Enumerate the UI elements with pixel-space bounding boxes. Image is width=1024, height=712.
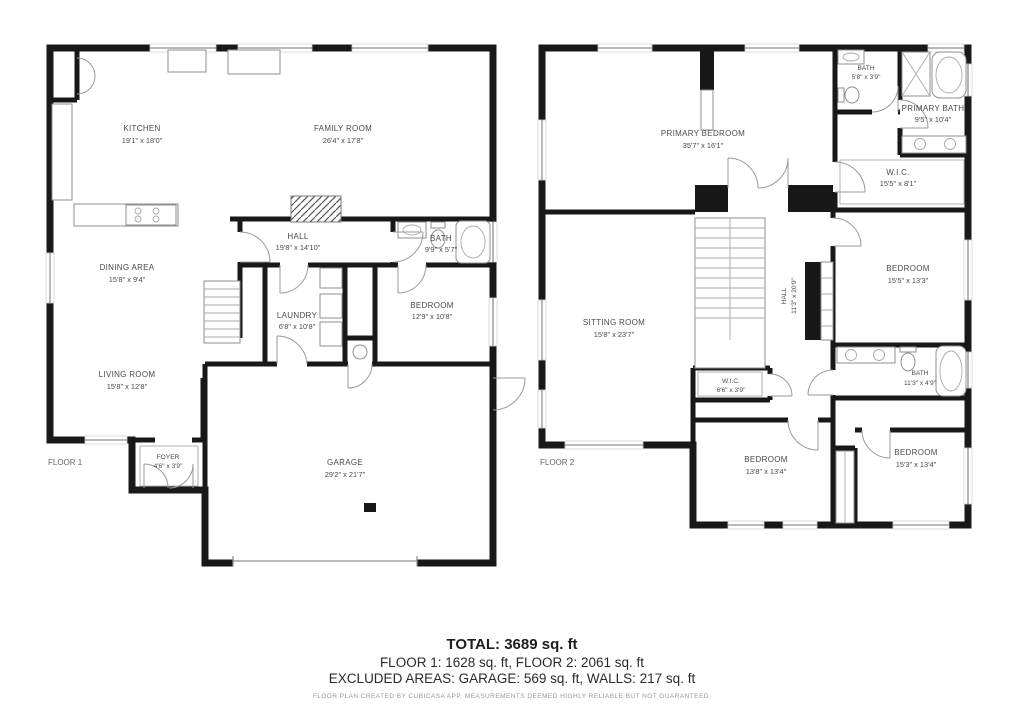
floor1-label: FLOOR 1 xyxy=(48,458,83,467)
room-label-primary-bedroom: PRIMARY BEDROOM 35'7" x 16'1" xyxy=(661,129,745,150)
svg-text:11'3" x 20'9": 11'3" x 20'9" xyxy=(791,278,798,314)
floor2-stairs xyxy=(695,218,765,368)
svg-text:SITTING ROOM: SITTING ROOM xyxy=(583,318,645,327)
svg-text:W.I.C.: W.I.C. xyxy=(722,378,740,385)
room-label-sitting-room: SITTING ROOM 15'8" x 23'7" xyxy=(583,318,645,339)
room-label-bedroom-bottom-right: BEDROOM 15'3" x 13'4" xyxy=(894,448,937,469)
room-label-family-room: FAMILY ROOM 26'4" x 17'8" xyxy=(314,124,372,145)
svg-text:LIVING ROOM: LIVING ROOM xyxy=(99,370,156,379)
bedroom-closet xyxy=(836,451,854,523)
svg-text:29'2" x 21'7": 29'2" x 21'7" xyxy=(325,470,366,479)
summary-floors: FLOOR 1: 1628 sq. ft, FLOOR 2: 2061 sq. … xyxy=(0,655,1024,670)
svg-text:9'9" x 5'7": 9'9" x 5'7" xyxy=(425,245,458,254)
room-label-garage: GARAGE 29'2" x 21'7" xyxy=(325,458,366,479)
svg-text:35'7" x 16'1": 35'7" x 16'1" xyxy=(683,141,724,150)
svg-text:15'8" x 9'4": 15'8" x 9'4" xyxy=(109,275,146,284)
room-label-kitchen: KITCHEN 19'1" x 18'0" xyxy=(122,124,163,145)
room-label-dining-area: DINING AREA 15'8" x 9'4" xyxy=(100,263,155,284)
svg-text:15'3" x 13'4": 15'3" x 13'4" xyxy=(896,460,937,469)
floor-plan-canvas: KITCHEN 19'1" x 18'0" FAMILY ROOM 26'4" … xyxy=(0,0,1024,712)
svg-text:12'9" x 10'8": 12'9" x 10'8" xyxy=(412,312,453,321)
svg-text:PRIMARY BATH: PRIMARY BATH xyxy=(902,104,965,113)
svg-text:6'8" x 10'8": 6'8" x 10'8" xyxy=(279,322,316,331)
svg-text:BATH: BATH xyxy=(911,370,928,377)
svg-text:LAUNDRY: LAUNDRY xyxy=(277,311,318,320)
svg-text:4'6" x 3'9": 4'6" x 3'9" xyxy=(154,463,183,470)
duct xyxy=(701,90,713,130)
summary-total: TOTAL: 3689 sq. ft xyxy=(0,636,1024,653)
svg-text:13'8" x 13'4": 13'8" x 13'4" xyxy=(746,467,787,476)
floor2-plan: PRIMARY BEDROOM 35'7" x 16'1" BATH 5'8" … xyxy=(538,44,972,529)
room-label-bedroom1: BEDROOM 12'9" x 10'8" xyxy=(410,301,453,321)
room-label-laundry: LAUNDRY 6'8" x 10'8" xyxy=(277,311,318,331)
svg-text:KITCHEN: KITCHEN xyxy=(123,124,160,133)
garage-door xyxy=(233,556,417,569)
svg-text:19'8" x 14'10": 19'8" x 14'10" xyxy=(276,243,321,252)
svg-text:BEDROOM: BEDROOM xyxy=(744,455,787,464)
svg-text:BATH: BATH xyxy=(430,234,452,243)
svg-text:W.I.C.: W.I.C. xyxy=(886,168,910,177)
svg-text:19'1" x 18'0": 19'1" x 18'0" xyxy=(122,136,163,145)
svg-text:15'8" x 12'8": 15'8" x 12'8" xyxy=(107,382,148,391)
summary-disclaimer: FLOOR PLAN CREATED BY CUBICASA APP. MEAS… xyxy=(0,693,1024,700)
floor1-stairs xyxy=(204,281,240,343)
svg-text:PRIMARY BEDROOM: PRIMARY BEDROOM xyxy=(661,129,745,138)
garage-post xyxy=(364,503,376,512)
room-label-bedroom-bottom-left: BEDROOM 13'8" x 13'4" xyxy=(744,455,787,476)
wall-chunk-left xyxy=(695,185,728,212)
room-label-primary-bath: PRIMARY BATH 9'5" x 10'4" xyxy=(902,104,965,124)
svg-text:BEDROOM: BEDROOM xyxy=(886,264,929,273)
floor1-doors xyxy=(77,58,525,488)
svg-text:FOYER: FOYER xyxy=(157,454,180,461)
summary-excluded: EXCLUDED AREAS: GARAGE: 569 sq. ft, WALL… xyxy=(0,671,1024,686)
svg-text:GARAGE: GARAGE xyxy=(327,458,363,467)
svg-text:26'4" x 17'8": 26'4" x 17'8" xyxy=(323,136,364,145)
room-label-wic: W.I.C. 15'5" x 8'1" xyxy=(880,168,917,188)
room-label-bath-top: BATH 5'8" x 3'9" xyxy=(852,65,881,81)
svg-text:9'5" x 10'4": 9'5" x 10'4" xyxy=(915,115,952,124)
chimney-stub xyxy=(700,48,714,90)
wall-chunk-right xyxy=(788,185,833,212)
room-label-living-room: LIVING ROOM 15'8" x 12'8" xyxy=(99,370,156,391)
floor2-bath-mid-fixtures xyxy=(837,346,966,396)
svg-text:15'8" x 23'7": 15'8" x 23'7" xyxy=(594,330,635,339)
hall-shelves xyxy=(821,262,833,340)
svg-text:FAMILY ROOM: FAMILY ROOM xyxy=(314,124,372,133)
svg-text:11'3" x 4'9": 11'3" x 4'9" xyxy=(904,380,937,387)
svg-text:15'5" x 8'1": 15'5" x 8'1" xyxy=(880,179,917,188)
svg-text:15'5" x 13'3": 15'5" x 13'3" xyxy=(888,276,929,285)
room-label-hall2: HALL 11'3" x 20'9" xyxy=(781,278,798,314)
floor1-plan: KITCHEN 19'1" x 18'0" FAMILY ROOM 26'4" … xyxy=(46,44,525,569)
room-label-bedroom-right: BEDROOM 15'5" x 13'3" xyxy=(886,264,929,285)
kitchen-fixtures xyxy=(52,50,280,226)
svg-text:DINING AREA: DINING AREA xyxy=(100,263,155,272)
floor2-label: FLOOR 2 xyxy=(540,458,575,467)
room-label-wic-small: W.I.C. 6'6" x 3'9" xyxy=(717,378,746,394)
floor-plan-page: KITCHEN 19'1" x 18'0" FAMILY ROOM 26'4" … xyxy=(0,0,1024,712)
svg-text:HALL: HALL xyxy=(287,232,308,241)
svg-text:5'8" x 3'9": 5'8" x 3'9" xyxy=(852,74,881,81)
svg-text:HALL: HALL xyxy=(781,287,788,304)
summary: TOTAL: 3689 sq. ft FLOOR 1: 1628 sq. ft,… xyxy=(0,636,1024,700)
room-label-foyer: FOYER 4'6" x 3'9" xyxy=(154,454,183,470)
room-label-hall1: HALL 19'8" x 14'10" xyxy=(276,232,321,252)
hall-wall-chunk xyxy=(805,262,821,340)
svg-text:BATH: BATH xyxy=(857,65,874,72)
fireplace xyxy=(291,196,341,222)
svg-text:BEDROOM: BEDROOM xyxy=(410,301,453,310)
room-label-bath-mid: BATH 11'3" x 4'9" xyxy=(904,370,937,387)
svg-text:6'6" x 3'9": 6'6" x 3'9" xyxy=(717,387,746,394)
svg-text:BEDROOM: BEDROOM xyxy=(894,448,937,457)
